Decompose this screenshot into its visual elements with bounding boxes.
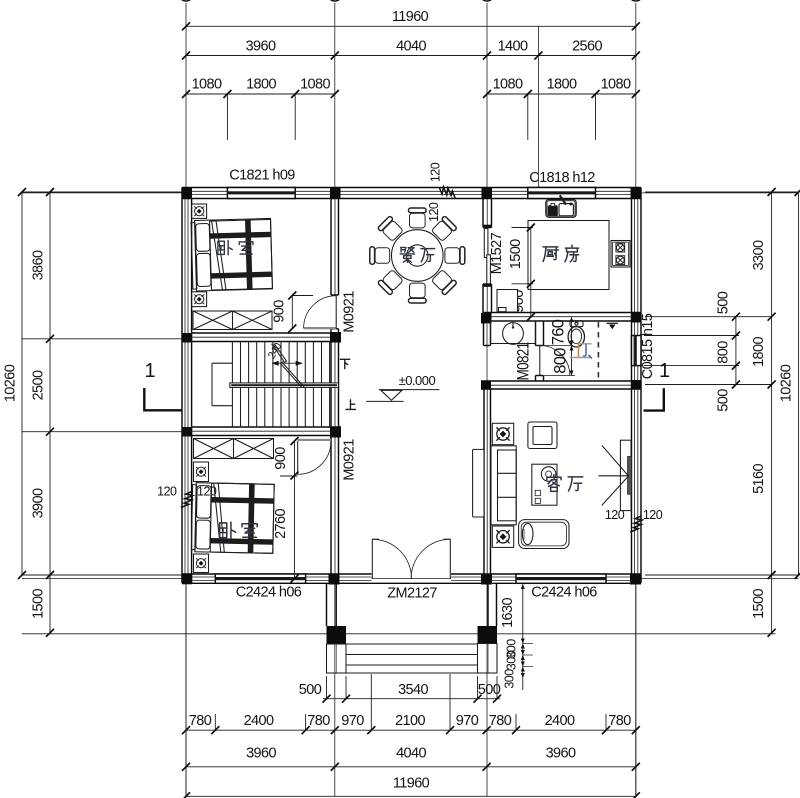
svg-text:M1527: M1527 <box>489 232 505 274</box>
svg-text:4040: 4040 <box>396 39 426 55</box>
svg-text:780: 780 <box>307 713 330 729</box>
svg-text:780: 780 <box>189 713 212 729</box>
svg-text:970: 970 <box>341 713 364 729</box>
svg-text:970: 970 <box>456 713 479 729</box>
svg-text:1080: 1080 <box>300 77 330 93</box>
svg-text:11960: 11960 <box>393 776 430 792</box>
svg-text:300: 300 <box>503 669 517 689</box>
svg-text:900: 900 <box>272 300 288 323</box>
svg-text:1800: 1800 <box>547 77 577 93</box>
svg-text:1800: 1800 <box>246 77 276 93</box>
svg-text:500: 500 <box>478 682 501 698</box>
svg-text:3300: 3300 <box>751 240 767 270</box>
svg-text:C1818 h12: C1818 h12 <box>529 170 595 186</box>
svg-text:10260: 10260 <box>3 364 19 402</box>
svg-text:300: 300 <box>505 650 519 670</box>
svg-text:3960: 3960 <box>246 746 276 762</box>
svg-text:780: 780 <box>608 713 631 729</box>
svg-text:120: 120 <box>157 485 177 499</box>
svg-text:M0821: M0821 <box>514 342 532 381</box>
svg-text:±0.000: ±0.000 <box>399 373 436 388</box>
svg-text:C1821 h09: C1821 h09 <box>229 168 295 184</box>
svg-text:500: 500 <box>716 389 732 412</box>
svg-text:120: 120 <box>429 162 443 182</box>
svg-text:120: 120 <box>643 508 663 522</box>
svg-text:1: 1 <box>659 360 670 382</box>
svg-text:1800: 1800 <box>751 337 767 367</box>
svg-text:3960: 3960 <box>546 746 576 762</box>
svg-text:3860: 3860 <box>31 250 47 280</box>
svg-text:3960: 3960 <box>246 39 276 55</box>
svg-text:M0921: M0921 <box>342 439 358 481</box>
svg-text:2500: 2500 <box>31 370 47 400</box>
svg-text:1400: 1400 <box>498 39 528 55</box>
svg-text:800: 800 <box>716 341 732 364</box>
svg-text:120: 120 <box>427 202 441 222</box>
svg-text:2560: 2560 <box>572 39 602 55</box>
svg-text:1: 1 <box>145 360 156 382</box>
svg-text:5160: 5160 <box>751 464 767 494</box>
svg-text:C0815 h15: C0815 h15 <box>640 313 656 379</box>
svg-text:C2424 h06: C2424 h06 <box>236 585 302 601</box>
svg-text:2400: 2400 <box>244 713 274 729</box>
svg-text:1630: 1630 <box>500 598 516 628</box>
svg-text:1080: 1080 <box>601 77 631 93</box>
svg-text:4040: 4040 <box>396 746 426 762</box>
svg-text:900: 900 <box>273 447 289 470</box>
svg-text:1500: 1500 <box>31 589 47 619</box>
svg-text:1500: 1500 <box>751 589 767 619</box>
svg-text:2100: 2100 <box>395 713 425 729</box>
svg-text:3900: 3900 <box>31 488 47 518</box>
svg-text:1080: 1080 <box>493 77 523 93</box>
svg-text:500: 500 <box>716 291 732 314</box>
svg-text:1500: 1500 <box>508 239 524 269</box>
svg-text:780: 780 <box>489 713 512 729</box>
svg-text:11960: 11960 <box>392 9 429 25</box>
svg-text:3540: 3540 <box>398 682 428 698</box>
svg-text:760: 760 <box>550 319 568 345</box>
svg-text:C2424 h06: C2424 h06 <box>531 585 597 601</box>
svg-text:ZM2127: ZM2127 <box>387 586 437 602</box>
svg-text:120: 120 <box>197 485 217 499</box>
svg-text:10260: 10260 <box>779 364 795 402</box>
svg-text:2400: 2400 <box>545 713 575 729</box>
svg-text:1080: 1080 <box>192 77 222 93</box>
svg-text:800: 800 <box>552 348 570 374</box>
svg-text:M0921: M0921 <box>342 291 358 333</box>
svg-text:500: 500 <box>299 682 322 698</box>
svg-text:2760: 2760 <box>273 509 289 539</box>
